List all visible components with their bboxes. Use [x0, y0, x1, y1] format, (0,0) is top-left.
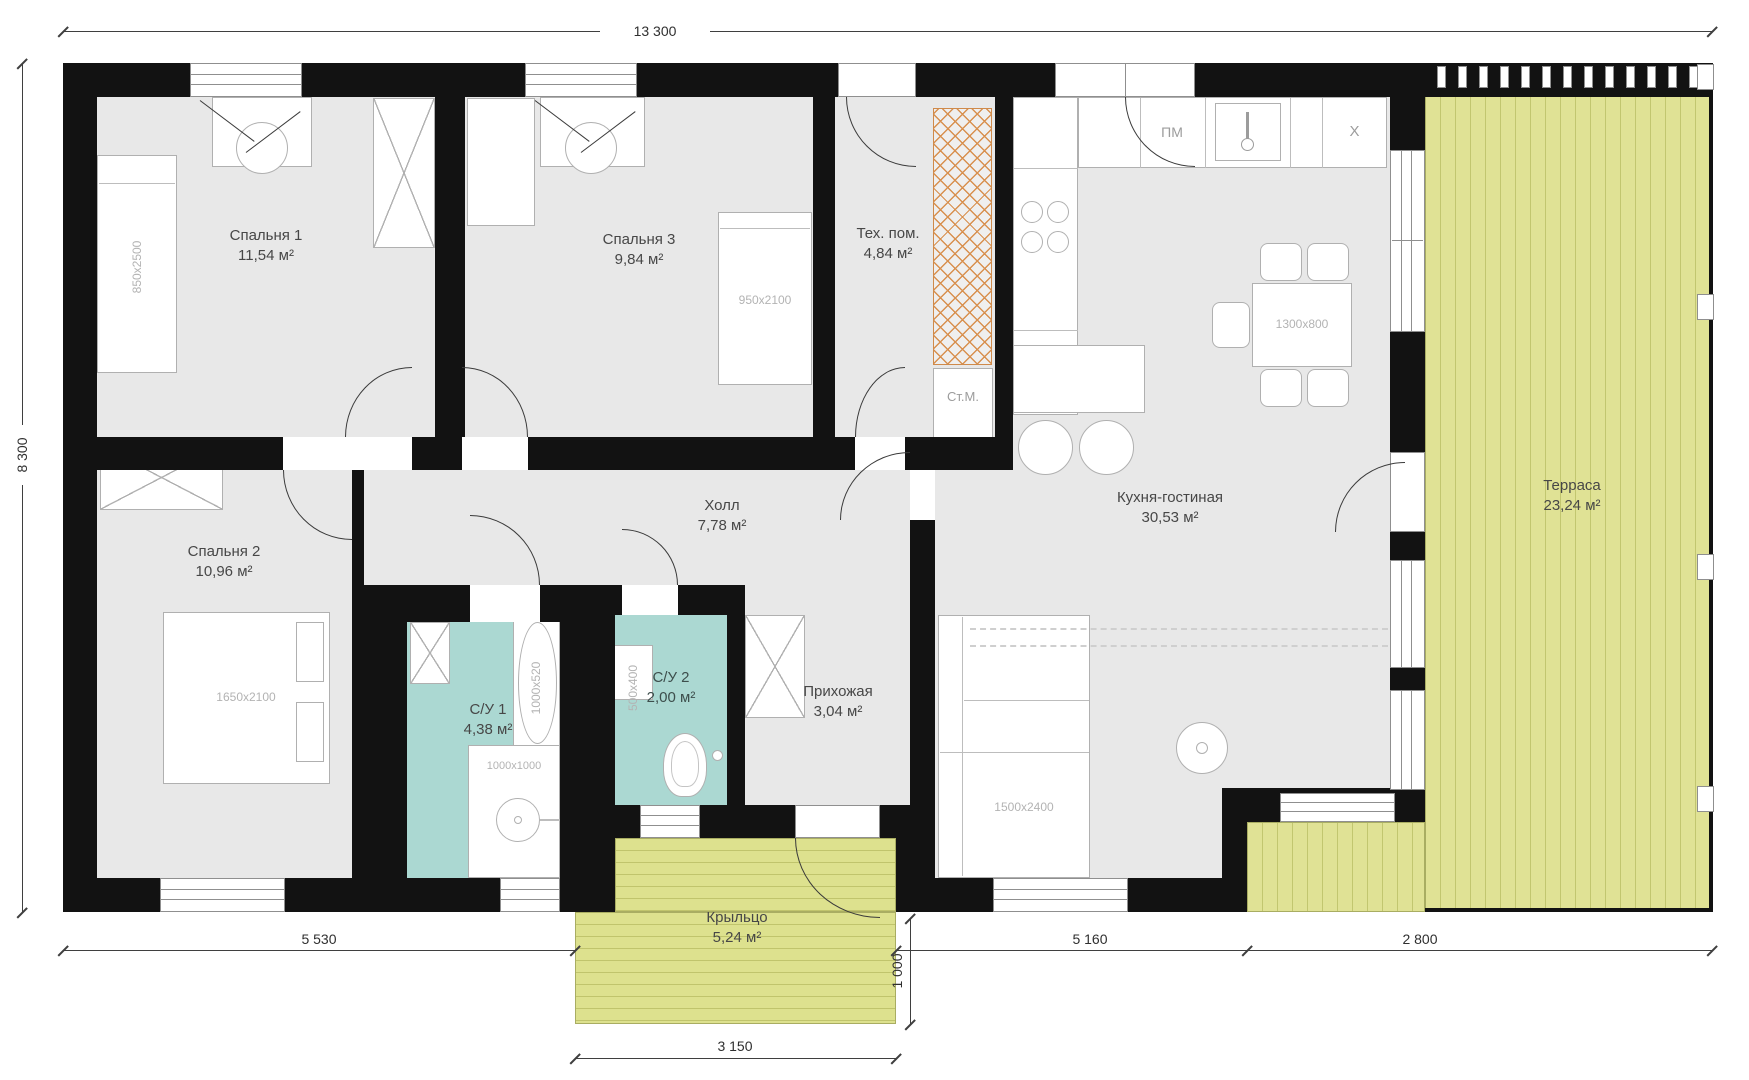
door-opening-tech	[838, 63, 916, 97]
kitchen-living-label: Кухня-гостиная 30,53 м²	[1070, 488, 1270, 528]
fridge-label: X	[1322, 123, 1387, 140]
floor-plan: Спальня 1 11,54 м² Спальня 3 9,84 м² Тех…	[0, 0, 1749, 1080]
bathroom1-label: С/У 1 4,38 м²	[388, 700, 588, 740]
sofa-icon	[938, 615, 1090, 878]
dishwasher-label: ПМ	[1146, 124, 1198, 140]
washing-machine-label: Ст.М.	[933, 389, 993, 404]
bedroom1-label: Спальня 1 11,54 м²	[166, 226, 366, 266]
wall-bed3-tech	[813, 97, 835, 470]
terrace-post	[1605, 66, 1614, 88]
bar-stool	[1018, 420, 1073, 475]
room-area: 23,24 м²	[1472, 496, 1672, 516]
bed2-size-label: 1650x2100	[196, 690, 296, 704]
window-kitchen-bottom	[993, 878, 1128, 912]
room-area: 4,84 м²	[788, 244, 988, 264]
tech-room-label: Тех. пом. 4,84 м²	[788, 224, 988, 264]
door-opening-bathroom1	[470, 585, 540, 622]
room-area: 7,78 м²	[622, 516, 822, 536]
room-area: 4,38 м²	[388, 720, 588, 740]
bed1-pillow-line	[99, 183, 175, 184]
wall-bath2-top-right	[678, 585, 745, 615]
window-bathroom2-porch	[640, 805, 700, 838]
room-name: Кухня-гостиная	[1070, 488, 1270, 508]
terrace-post	[1521, 66, 1530, 88]
terrace-post	[1647, 66, 1656, 88]
dining-chair	[1260, 243, 1302, 281]
dining-table-size-label: 1300x800	[1252, 317, 1352, 331]
room-name: Спальня 1	[166, 226, 366, 246]
door-opening-bedroom2	[283, 437, 352, 470]
front-door-opening	[795, 805, 880, 838]
room-name: Прихожая	[738, 682, 938, 702]
faucet-icon	[1241, 138, 1254, 151]
dining-chair	[1260, 369, 1302, 407]
slider-break	[1392, 240, 1423, 241]
bed2-pillow	[296, 702, 324, 762]
dimension-line-left	[22, 63, 23, 912]
dim-bottom-right: 2 800	[1370, 931, 1470, 947]
toilet-seat	[671, 741, 699, 787]
terrace-edge-post	[1697, 294, 1714, 320]
room-name: Крыльцо	[637, 908, 837, 928]
floor-lamp-dot	[1196, 742, 1208, 754]
bathtub-size-label: 1000x520	[529, 653, 543, 723]
hall-label: Холл 7,78 м²	[622, 496, 822, 536]
bar-stool	[1079, 420, 1134, 475]
wall-bed1-bed3	[435, 97, 465, 437]
door-opening-bathroom2	[622, 585, 678, 615]
counter-divider	[1205, 98, 1206, 168]
ceiling-dashed-line	[970, 645, 1388, 647]
room-area: 10,96 м²	[124, 562, 324, 582]
counter-divider	[1014, 330, 1078, 331]
terrace-edge-post	[1697, 786, 1714, 812]
dim-porch-depth: 1 000	[889, 941, 905, 1001]
terrace-post	[1437, 66, 1446, 88]
terrace-post	[1668, 66, 1677, 88]
room-name: Спальня 3	[539, 230, 739, 250]
chair1-icon	[236, 122, 288, 174]
room-name: Тех. пом.	[788, 224, 988, 244]
dim-bottom-middle: 5 160	[1040, 931, 1140, 947]
room-area: 30,53 м²	[1070, 508, 1270, 528]
dining-chair	[1212, 302, 1250, 348]
entry-label: Прихожая 3,04 м²	[738, 682, 938, 722]
sofa-size-label: 1500x2400	[974, 800, 1074, 814]
wall-bath1-bath2	[560, 585, 615, 912]
bed3-size-label: 950x2100	[720, 293, 810, 307]
window-living-2	[1390, 690, 1425, 790]
dimension-line-porch-width	[575, 1058, 896, 1059]
wall-bath2-top-left	[612, 585, 622, 615]
counter-divider	[1290, 98, 1291, 168]
window-living-1	[1390, 560, 1425, 668]
door-opening-hall-kitchen	[910, 470, 935, 520]
dining-chair	[1307, 369, 1349, 407]
ceiling-dashed-line	[970, 628, 1388, 630]
terrace-post	[1563, 66, 1572, 88]
wall-tech-kitchen	[995, 97, 1013, 470]
dim-porch-width: 3 150	[685, 1038, 785, 1054]
wall-horizontal-main	[63, 437, 855, 470]
window-bedroom3	[525, 63, 637, 97]
faucet-stem	[1246, 112, 1249, 140]
door-frame-line	[1125, 64, 1126, 96]
wardrobe1-icon	[373, 98, 435, 248]
door-opening-bedroom1	[345, 437, 412, 470]
room-area: 3,04 м²	[738, 702, 938, 722]
hob-burner	[1047, 231, 1069, 253]
wall-entry-kitchen	[910, 520, 935, 805]
wall-terrace-right-edge	[1709, 63, 1713, 912]
kitchen-island	[1013, 345, 1145, 413]
shower-drain-dot	[514, 816, 522, 824]
dimension-line-porch-depth	[910, 918, 911, 1024]
bed1-size-label: 850x2500	[130, 227, 144, 307]
door-opening-bedroom3	[462, 437, 528, 470]
dim-total-depth: 8 300	[14, 425, 30, 485]
sofa-cushion-line	[964, 700, 1089, 701]
terrace-post	[1500, 66, 1509, 88]
bedroom2-label: Спальня 2 10,96 м²	[124, 542, 324, 582]
wall-entry-bottom-left	[727, 805, 795, 838]
terrace-post	[1584, 66, 1593, 88]
window-bathroom1	[500, 878, 560, 912]
terrace-corner-post	[1697, 64, 1714, 90]
bedroom3-label: Спальня 3 9,84 м²	[539, 230, 739, 270]
room-name: С/У 1	[388, 700, 588, 720]
wall-terrace-bottom-edge	[1425, 908, 1713, 912]
wall-left	[63, 63, 97, 912]
dining-chair	[1307, 243, 1349, 281]
wall-bottom-left	[63, 878, 560, 912]
counter-divider	[1014, 168, 1078, 169]
closet3-icon	[467, 98, 535, 226]
wall-entry-kitchen-top	[910, 437, 935, 470]
washer-icon	[410, 622, 450, 684]
terrace-post	[1458, 66, 1467, 88]
dim-total-width: 13 300	[600, 23, 710, 39]
window-bedroom2	[160, 878, 285, 912]
dimension-line-top	[63, 31, 1712, 32]
room-area: 11,54 м²	[166, 246, 366, 266]
room-name: Холл	[622, 496, 822, 516]
room-name: Спальня 2	[124, 542, 324, 562]
wall-bath1-top-left	[407, 585, 470, 622]
room-area: 9,84 м²	[539, 250, 739, 270]
terrace-post	[1479, 66, 1488, 88]
porch-label: Крыльцо 5,24 м²	[637, 908, 837, 948]
toilet-flush-button	[712, 750, 723, 761]
sliding-door-terrace	[1390, 150, 1425, 332]
hob-burner	[1047, 201, 1069, 223]
hob-burner	[1021, 231, 1043, 253]
bed2-pillow	[296, 622, 324, 682]
sink-size-label: 500x400	[626, 656, 640, 720]
terrace-edge-post	[1697, 554, 1714, 580]
dimension-line-bottom-left	[63, 950, 575, 951]
wall-porch-right	[896, 805, 935, 912]
terrace-post	[1542, 66, 1551, 88]
room-area: 5,24 м²	[637, 928, 837, 948]
wall-bed2-hall	[352, 470, 364, 585]
terrace-deck-wrap	[1247, 822, 1425, 912]
room-name: Терраса	[1472, 476, 1672, 496]
terrace-label: Терраса 23,24 м²	[1472, 476, 1672, 516]
sofa-cushion-line	[940, 752, 1089, 753]
shower-size-label: 1000x1000	[481, 760, 547, 772]
sofa-back-line	[962, 617, 963, 876]
window-bedroom1	[190, 63, 302, 97]
dimension-line-bottom-right	[896, 950, 1712, 951]
dim-bottom-left: 5 530	[269, 931, 369, 947]
wall-bath1-top-right	[540, 585, 560, 622]
hob-burner	[1021, 201, 1043, 223]
terrace-post	[1626, 66, 1635, 88]
window-living-bottom-right	[1280, 793, 1395, 822]
